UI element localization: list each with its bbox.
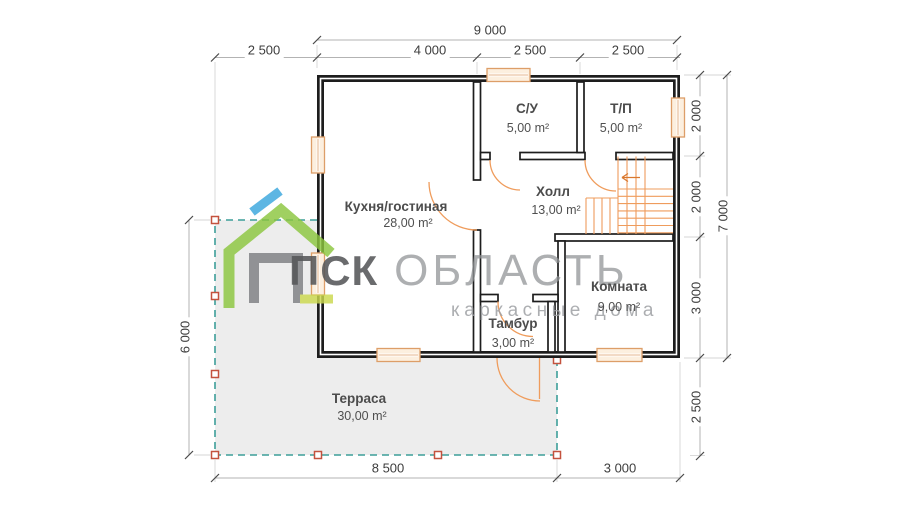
windows — [312, 69, 685, 362]
stairs — [586, 157, 673, 235]
terrace-area — [212, 217, 561, 459]
stairs-direction-arrow — [622, 174, 640, 182]
door-boiler — [585, 160, 616, 191]
door-bathroom — [490, 160, 520, 190]
outer-walls — [321, 79, 677, 355]
door-kitchen — [429, 182, 477, 230]
floor-plan-drawing — [0, 0, 900, 506]
door-tambour — [498, 302, 533, 337]
interior-walls — [474, 82, 674, 352]
floor-plan-page: ПСК ОБЛАСТЬ каркасные дома 9 000 2 500 4… — [0, 0, 900, 506]
